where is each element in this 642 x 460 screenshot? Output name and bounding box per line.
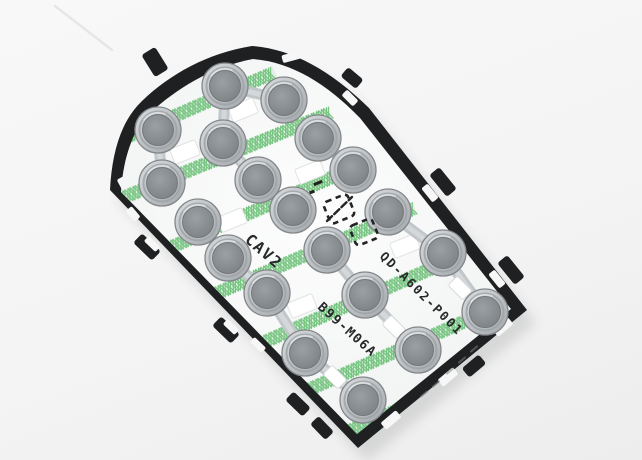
dome-snap-disc xyxy=(348,385,379,416)
keypad-dome xyxy=(270,187,316,233)
photo-stage: CAV2 QD-A602-P001 B99-M06A xyxy=(0,0,642,460)
keypad-dome xyxy=(282,330,328,376)
dome-snap-disc xyxy=(373,197,404,228)
dome-snap-disc xyxy=(210,71,241,102)
keypad-dome xyxy=(365,189,411,235)
keypad-dome xyxy=(175,199,221,245)
keypad-dome xyxy=(261,77,307,123)
dome-snap-disc xyxy=(243,165,274,196)
keypad-dome xyxy=(340,377,386,423)
dome-snap-disc xyxy=(290,338,321,369)
background-scratch xyxy=(55,6,112,50)
dome-snap-disc xyxy=(252,278,283,309)
keypad-dome xyxy=(330,147,376,193)
dome-snap-disc xyxy=(183,207,214,238)
keypad-dome xyxy=(395,327,441,373)
dome-snap-disc xyxy=(403,335,434,366)
keypad-dome xyxy=(304,227,350,273)
dome-snap-disc xyxy=(147,168,178,199)
dome-snap-disc xyxy=(470,297,501,328)
dome-snap-disc xyxy=(269,85,300,116)
frame-tab xyxy=(141,47,168,78)
dome-snap-disc xyxy=(213,243,244,274)
dome-snap-disc xyxy=(143,115,174,146)
keypad-dome xyxy=(202,63,248,109)
keypad-dome xyxy=(295,115,341,161)
dome-snap-disc xyxy=(278,195,309,226)
dome-snap-disc xyxy=(303,123,334,154)
keypad-dome xyxy=(420,230,466,276)
keypad-dome xyxy=(139,160,185,206)
dome-snap-disc xyxy=(338,155,369,186)
frame-tab xyxy=(340,67,363,89)
dome-snap-disc xyxy=(428,238,459,269)
keypad-dome xyxy=(342,272,388,318)
keypad-dome xyxy=(462,289,508,335)
dome-snap-disc xyxy=(312,235,343,266)
dome-snap-disc xyxy=(208,128,239,159)
keypad-dome xyxy=(135,107,181,153)
keypad-dome xyxy=(244,270,290,316)
keypad-membrane-photo: CAV2 QD-A602-P001 B99-M06A xyxy=(0,0,642,460)
dome-snap-disc xyxy=(350,280,381,311)
keypad-dome xyxy=(200,120,246,166)
